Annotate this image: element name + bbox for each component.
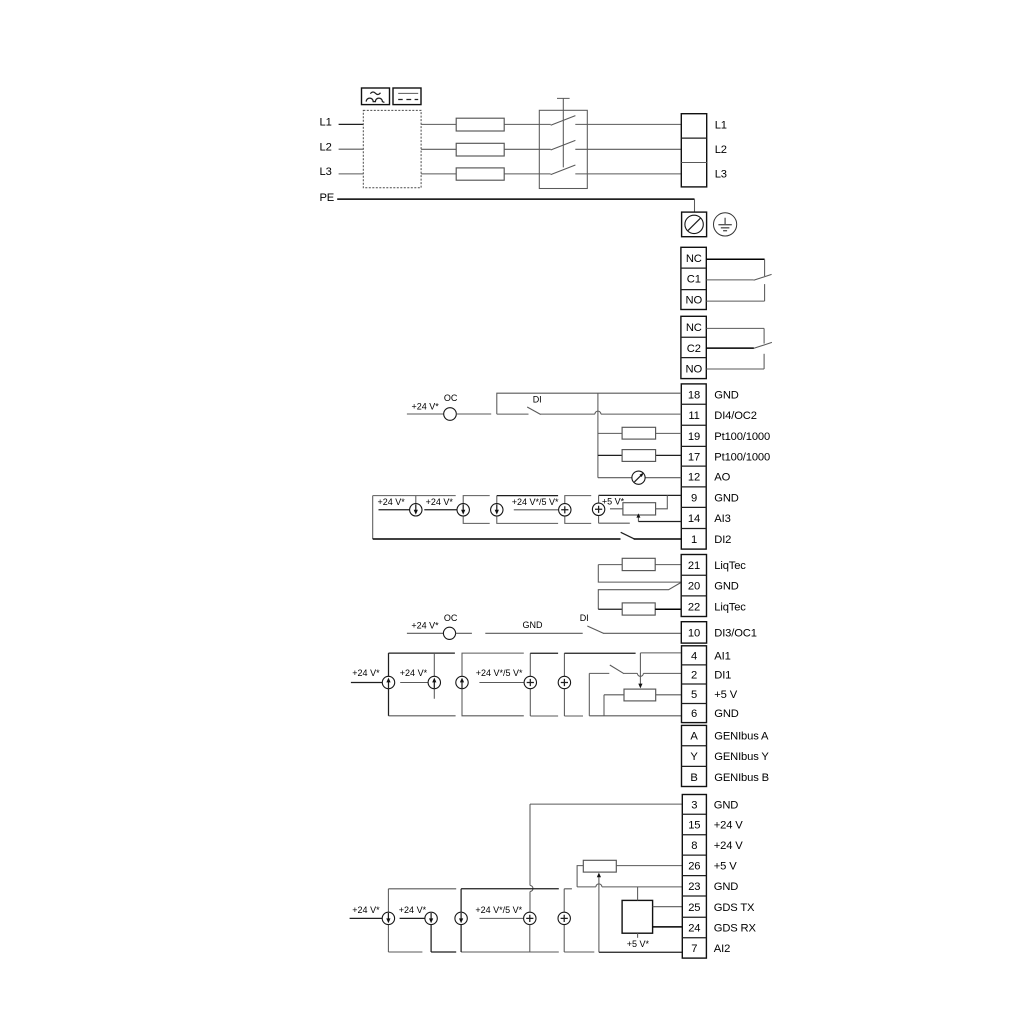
svg-text:L3: L3 xyxy=(715,169,727,181)
svg-text:Y: Y xyxy=(690,751,698,763)
svg-text:L2: L2 xyxy=(715,144,727,156)
svg-text:18: 18 xyxy=(688,389,700,401)
svg-text:C1: C1 xyxy=(687,274,701,286)
svg-text:1: 1 xyxy=(691,534,697,546)
svg-text:DI: DI xyxy=(533,394,542,404)
svg-text:22: 22 xyxy=(688,602,700,614)
svg-text:GND: GND xyxy=(714,708,738,720)
svg-text:20: 20 xyxy=(688,581,700,593)
svg-text:LiqTec: LiqTec xyxy=(714,602,746,614)
svg-text:+5 V: +5 V xyxy=(714,861,737,873)
svg-text:AI1: AI1 xyxy=(714,651,730,663)
svg-text:23: 23 xyxy=(688,881,700,893)
svg-text:12: 12 xyxy=(688,472,700,484)
svg-text:+24 V*: +24 V* xyxy=(411,621,439,631)
svg-text:GND: GND xyxy=(714,800,738,812)
svg-text:24: 24 xyxy=(688,923,700,935)
svg-text:GENIbus Y: GENIbus Y xyxy=(714,751,769,763)
svg-text:L2: L2 xyxy=(320,141,332,153)
svg-text:GDS TX: GDS TX xyxy=(714,902,755,914)
svg-text:NO: NO xyxy=(686,295,703,307)
svg-text:PE: PE xyxy=(320,192,335,204)
svg-text:5: 5 xyxy=(691,689,697,701)
svg-text:11: 11 xyxy=(688,410,699,422)
svg-text:10: 10 xyxy=(688,628,700,640)
svg-text:+24 V*: +24 V* xyxy=(399,905,427,915)
svg-text:+24 V*: +24 V* xyxy=(378,497,406,507)
svg-text:AI2: AI2 xyxy=(714,943,730,955)
svg-text:9: 9 xyxy=(691,492,697,504)
svg-text:GND: GND xyxy=(714,389,738,401)
svg-text:17: 17 xyxy=(688,451,700,463)
svg-text:+24 V*/5 V*: +24 V*/5 V* xyxy=(512,497,559,507)
svg-text:DI3/OC1: DI3/OC1 xyxy=(714,628,756,640)
svg-text:+24 V*/5 V*: +24 V*/5 V* xyxy=(475,905,522,915)
svg-text:2: 2 xyxy=(691,670,697,682)
svg-text:Pt100/1000: Pt100/1000 xyxy=(714,451,770,463)
svg-text:OC: OC xyxy=(444,393,458,403)
svg-text:+24 V*: +24 V* xyxy=(400,668,428,678)
svg-text:3: 3 xyxy=(691,800,697,812)
svg-text:LiqTec: LiqTec xyxy=(714,560,746,572)
svg-text:DI: DI xyxy=(580,613,589,623)
svg-text:GND: GND xyxy=(714,492,738,504)
svg-text:L3: L3 xyxy=(320,166,332,178)
svg-text:19: 19 xyxy=(688,431,700,443)
svg-text:NO: NO xyxy=(686,363,703,375)
svg-text:26: 26 xyxy=(688,861,700,873)
svg-text:L1: L1 xyxy=(715,119,727,131)
svg-text:GND: GND xyxy=(523,620,544,630)
svg-text:GDS RX: GDS RX xyxy=(714,923,757,935)
svg-text:+24 V*: +24 V* xyxy=(352,668,380,678)
svg-text:AI3: AI3 xyxy=(714,513,730,525)
svg-text:NC: NC xyxy=(686,253,702,265)
svg-text:GND: GND xyxy=(714,881,738,893)
svg-text:+24 V*: +24 V* xyxy=(426,497,454,507)
svg-text:21: 21 xyxy=(688,560,700,572)
svg-text:+5 V*: +5 V* xyxy=(627,939,650,949)
svg-text:OC: OC xyxy=(444,613,458,623)
svg-text:+5 V: +5 V xyxy=(714,689,737,701)
svg-text:DI4/OC2: DI4/OC2 xyxy=(714,410,756,422)
svg-text:GENIbus B: GENIbus B xyxy=(714,772,769,784)
svg-text:GENIbus A: GENIbus A xyxy=(714,731,769,743)
svg-text:AO: AO xyxy=(714,472,730,484)
svg-text:Pt100/1000: Pt100/1000 xyxy=(714,431,770,443)
svg-text:6: 6 xyxy=(691,708,697,720)
svg-text:15: 15 xyxy=(688,820,700,832)
svg-text:+24 V*: +24 V* xyxy=(412,401,440,411)
svg-text:DI2: DI2 xyxy=(714,534,731,546)
svg-text:+5 V*: +5 V* xyxy=(602,497,625,507)
svg-text:14: 14 xyxy=(688,513,700,525)
svg-text:B: B xyxy=(690,772,697,784)
svg-text:DI1: DI1 xyxy=(714,670,731,682)
svg-text:+24 V*/5 V*: +24 V*/5 V* xyxy=(476,668,523,678)
svg-text:+24 V: +24 V xyxy=(714,840,743,852)
svg-text:25: 25 xyxy=(688,902,700,914)
svg-text:NC: NC xyxy=(686,322,702,334)
svg-text:A: A xyxy=(690,731,698,743)
svg-text:GND: GND xyxy=(714,581,738,593)
svg-text:+24 V: +24 V xyxy=(714,820,743,832)
svg-text:C2: C2 xyxy=(687,343,701,355)
svg-text:4: 4 xyxy=(691,651,697,663)
svg-text:+24 V*: +24 V* xyxy=(352,905,380,915)
svg-text:L1: L1 xyxy=(320,117,332,129)
svg-text:7: 7 xyxy=(691,943,697,955)
svg-text:8: 8 xyxy=(691,840,697,852)
